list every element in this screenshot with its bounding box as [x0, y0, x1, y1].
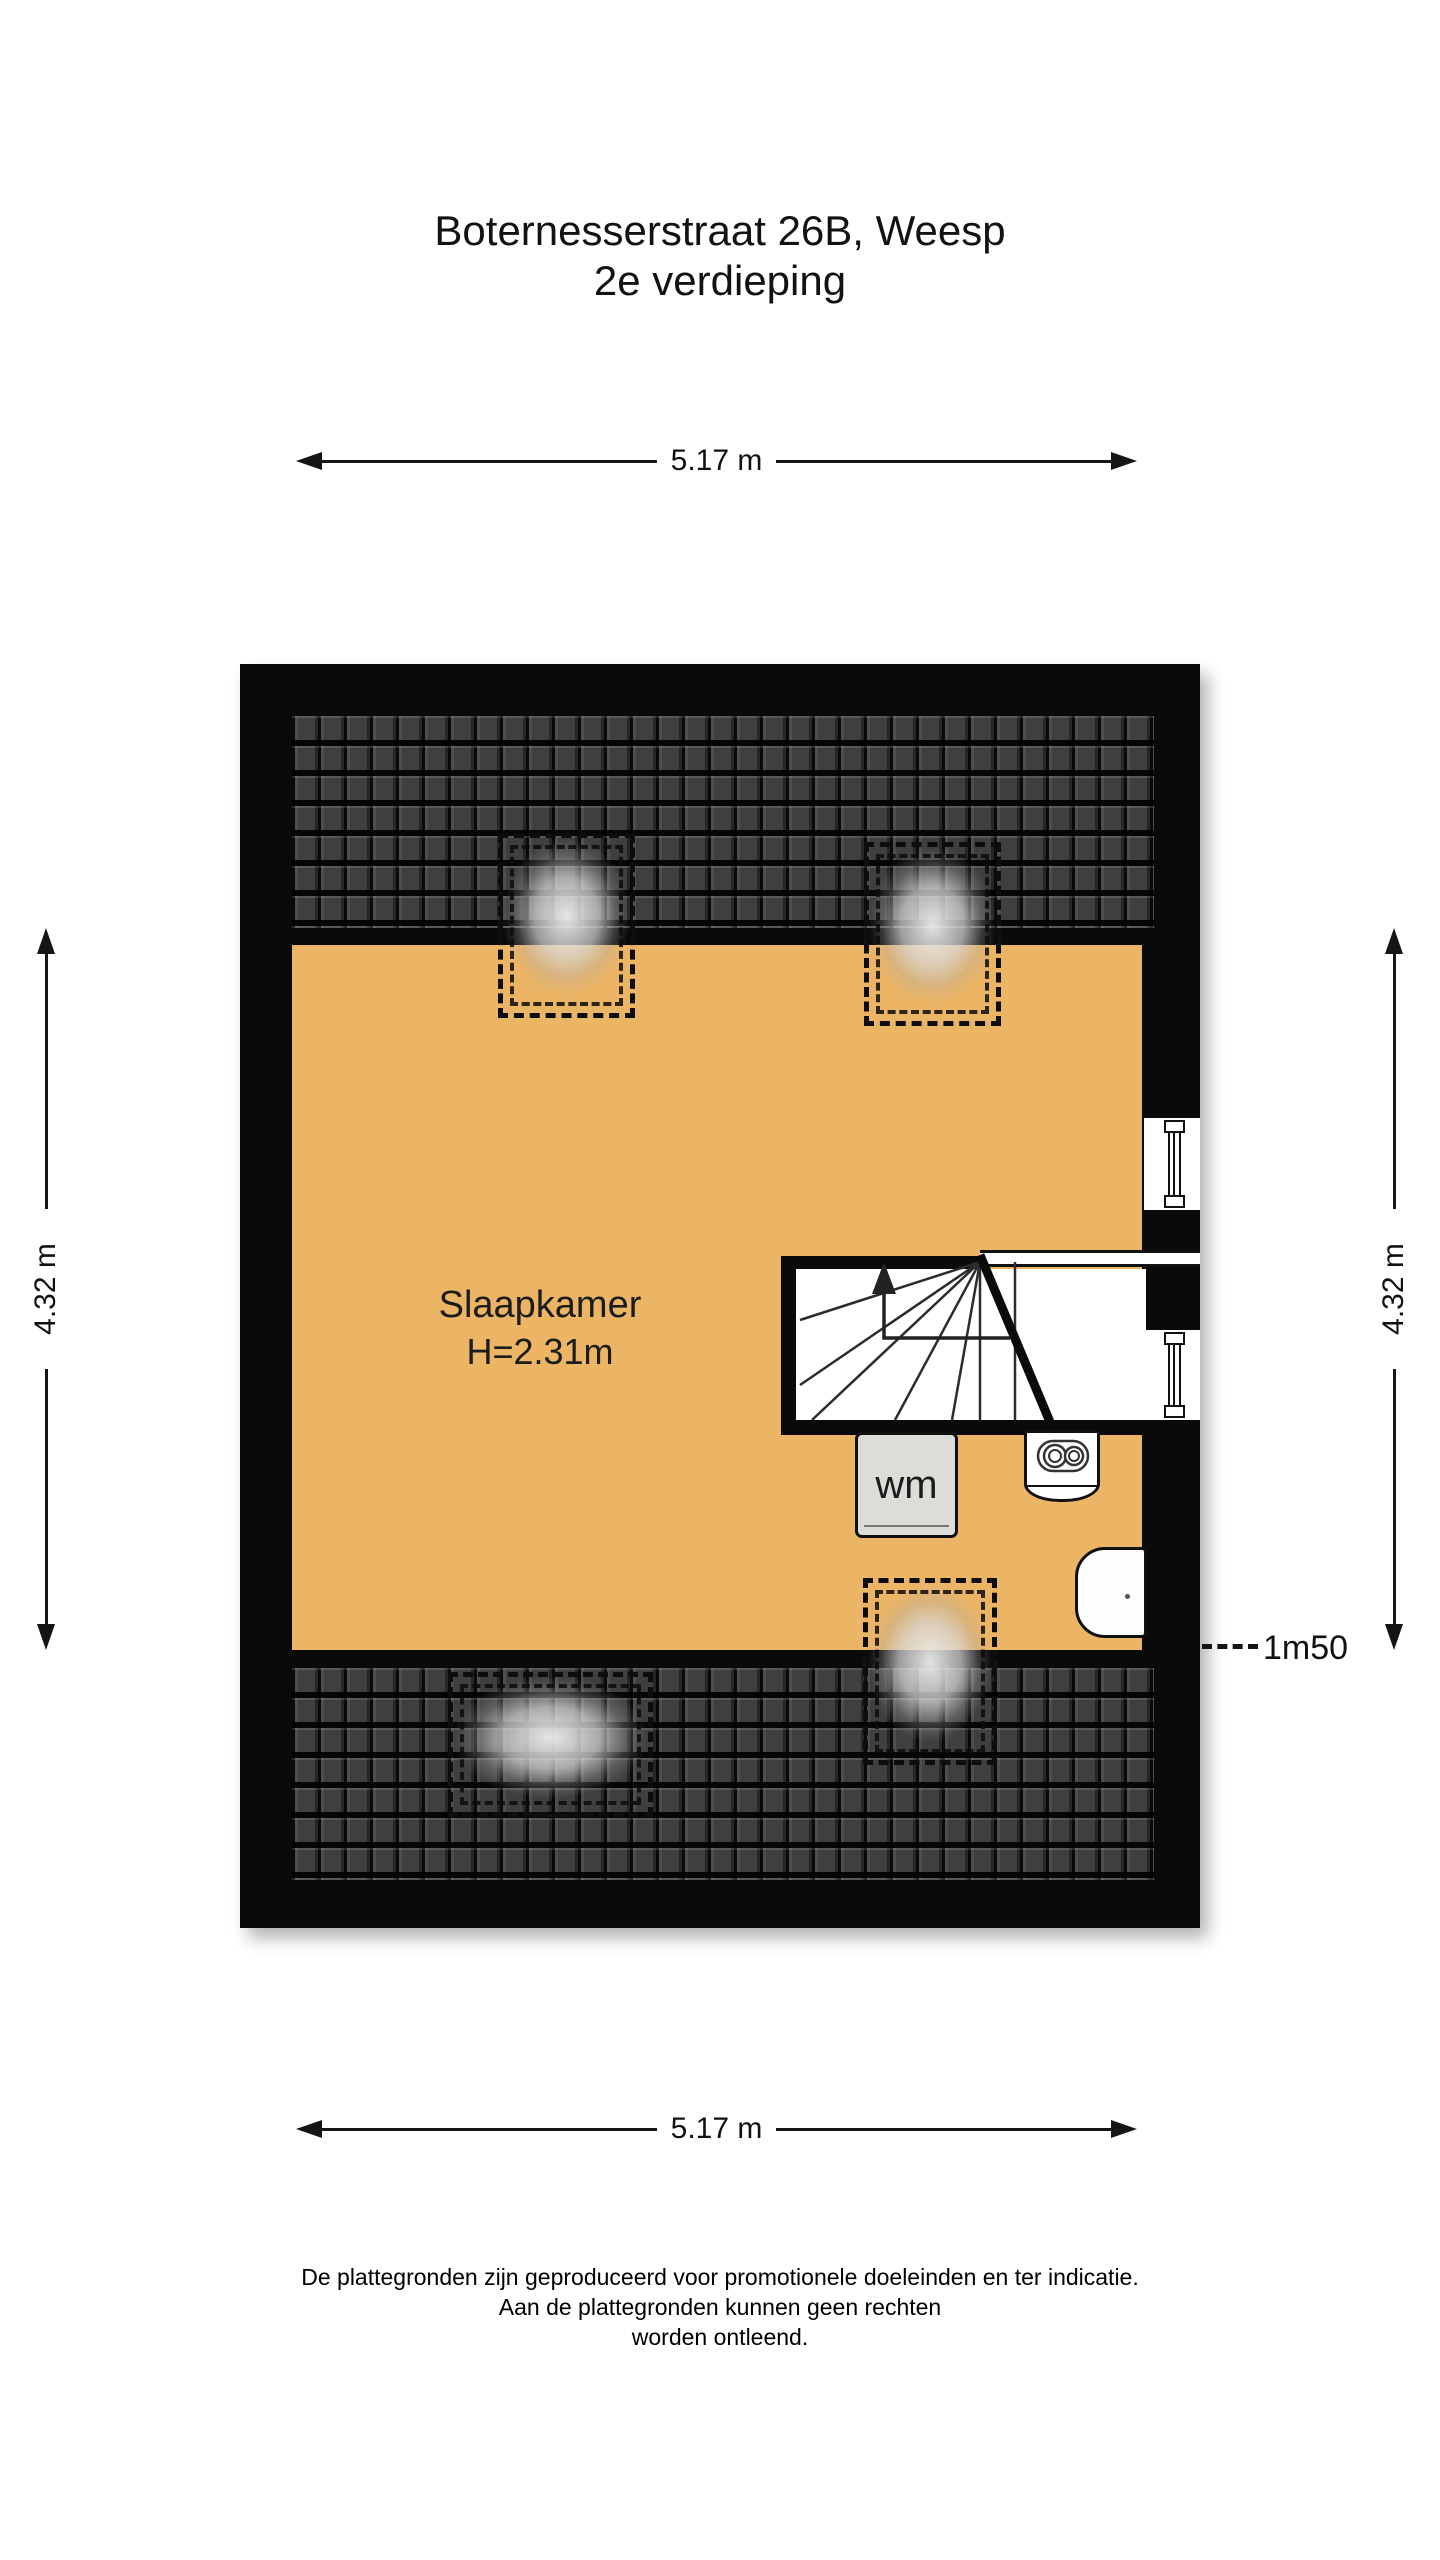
- stair-direction-arrow: [872, 1262, 896, 1294]
- dimension-line: [776, 2128, 1111, 2131]
- address-line: Boternesserstraat 26B, Weesp: [0, 206, 1440, 256]
- roof-tiles-bottom: [292, 1668, 1154, 1880]
- room-ceiling-height: H=2.31m: [340, 1329, 740, 1375]
- stairs-icon: [781, 1250, 1146, 1435]
- window-glazing: [1168, 1343, 1181, 1407]
- boiler-icon: [1035, 1438, 1091, 1476]
- dimension-height-right: 4.32 m: [1379, 928, 1409, 1650]
- disclaimer-line: worden ontleend.: [0, 2322, 1440, 2352]
- washing-machine-label: wm: [875, 1463, 937, 1508]
- arrow-right-icon: [1111, 452, 1137, 470]
- dimension-line: [322, 2128, 657, 2131]
- dimension-label: 4.32 m: [1348, 1209, 1440, 1369]
- sink: [1075, 1547, 1147, 1638]
- floor-line: 2e verdieping: [0, 256, 1440, 306]
- disclaimer-line: De plattegronden zijn geproduceerd voor …: [0, 2262, 1440, 2292]
- window-sill: [1164, 1195, 1185, 1208]
- dimension-line: [776, 460, 1111, 463]
- page-title: Boternesserstraat 26B, Weesp 2e verdiepi…: [0, 206, 1440, 306]
- window-sill: [1164, 1405, 1185, 1418]
- headroom-label: 1m50: [1263, 1629, 1348, 1668]
- dimension-line: [1393, 954, 1396, 1209]
- skylight-top-left: [498, 833, 635, 1018]
- arrow-down-icon: [37, 1624, 55, 1650]
- roof-tiles-top: [292, 716, 1154, 928]
- window-glazing: [1168, 1131, 1181, 1197]
- dimension-line: [1393, 1369, 1396, 1624]
- window-lower: [1144, 1330, 1200, 1420]
- floorplan-page: Boternesserstraat 26B, Weesp 2e verdiepi…: [0, 0, 1440, 2560]
- arrow-left-icon: [296, 2120, 322, 2138]
- arrow-left-icon: [296, 452, 322, 470]
- skylight-top-right: [864, 842, 1001, 1026]
- dimension-line: [45, 954, 48, 1209]
- dimension-height-left: 4.32 m: [31, 928, 61, 1650]
- skylight-bottom-right: [863, 1578, 997, 1765]
- arrow-down-icon: [1385, 1624, 1403, 1650]
- disclaimer: De plattegronden zijn geproduceerd voor …: [0, 2262, 1440, 2352]
- disclaimer-line: Aan de plattegronden kunnen geen rechten: [0, 2292, 1440, 2322]
- dimension-label: 5.17 m: [657, 2112, 777, 2146]
- room-name: Slaapkamer: [340, 1282, 740, 1329]
- dimension-line: [322, 460, 657, 463]
- dimension-width-bottom: 5.17 m: [296, 2114, 1137, 2144]
- arrow-up-icon: [1385, 928, 1403, 954]
- dimension-label: 5.17 m: [657, 444, 777, 478]
- arrow-right-icon: [1111, 2120, 1137, 2138]
- room-label: Slaapkamer H=2.31m: [340, 1282, 740, 1375]
- floorplan: Slaapkamer H=2.31m: [240, 664, 1200, 1928]
- headroom-dash-line: [1202, 1644, 1258, 1649]
- dimension-label: 4.32 m: [0, 1209, 92, 1369]
- window-upper: [1144, 1118, 1200, 1210]
- dimension-line: [45, 1369, 48, 1624]
- boiler-unit: [1024, 1430, 1100, 1502]
- dimension-width-top: 5.17 m: [296, 446, 1137, 476]
- skylight-bottom-left: [448, 1672, 653, 1817]
- washing-machine: wm: [855, 1432, 958, 1538]
- arrow-up-icon: [37, 928, 55, 954]
